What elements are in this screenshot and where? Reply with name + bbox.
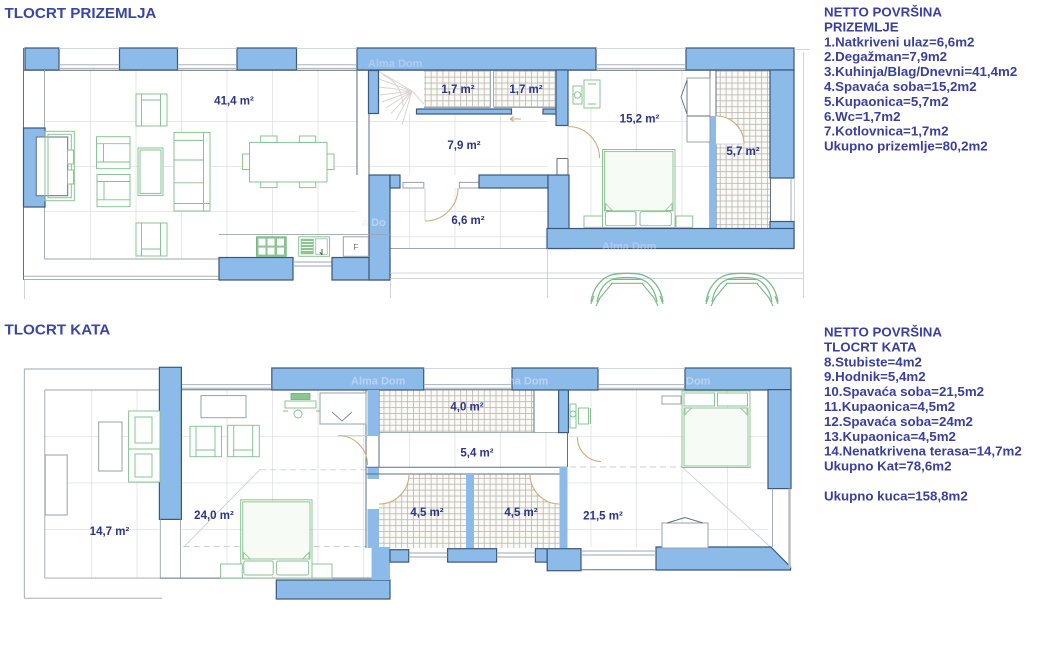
svg-text:10.Spavaća soba=21,5m2: 10.Spavaća soba=21,5m2 xyxy=(824,384,984,399)
svg-text:Alma Dom: Alma Dom xyxy=(602,241,657,253)
svg-text:1,7 m²: 1,7 m² xyxy=(441,84,474,96)
svg-text:F: F xyxy=(353,243,358,252)
svg-text:NETTO POVRŠINA: NETTO POVRŠINA xyxy=(824,5,942,20)
svg-text:12.Spavaća soba=24m2: 12.Spavaća soba=24m2 xyxy=(824,414,973,429)
svg-text:11.Kupaonica=4,5m2: 11.Kupaonica=4,5m2 xyxy=(824,399,955,414)
svg-text:a Do: a Do xyxy=(362,217,386,229)
svg-text:6.Wc=1,7m2: 6.Wc=1,7m2 xyxy=(824,109,901,124)
svg-text:7,9 m²: 7,9 m² xyxy=(447,140,480,152)
svg-text:7.Kotlovnica=1,7m2: 7.Kotlovnica=1,7m2 xyxy=(824,124,949,139)
svg-text:1,7 m²: 1,7 m² xyxy=(509,84,542,96)
svg-text:Ukupno Kat=78,6m2: Ukupno Kat=78,6m2 xyxy=(824,459,951,474)
svg-text:4,5 m²: 4,5 m² xyxy=(410,507,443,519)
svg-text:5,7 m²: 5,7 m² xyxy=(726,146,759,158)
svg-text:4.Spavaća soba=15,2m2: 4.Spavaća soba=15,2m2 xyxy=(824,79,977,94)
svg-text:Ukupno kuca=158,8m2: Ukupno kuca=158,8m2 xyxy=(824,488,968,503)
svg-text:TLOCRT KATA: TLOCRT KATA xyxy=(824,339,917,354)
svg-text:13.Kupaonica=4,5m2: 13.Kupaonica=4,5m2 xyxy=(824,429,956,444)
svg-text:1.Natkriveni ulaz=6,6m2: 1.Natkriveni ulaz=6,6m2 xyxy=(824,34,974,49)
svg-text:5,4 m²: 5,4 m² xyxy=(460,448,493,460)
svg-text:14,7 m²: 14,7 m² xyxy=(90,526,130,538)
svg-text:NETTO POVRŠINA: NETTO POVRŠINA xyxy=(824,325,942,340)
svg-text:PRIZEMLJE: PRIZEMLJE xyxy=(824,19,899,34)
svg-text:na Dom: na Dom xyxy=(508,376,549,388)
svg-text:2.Degažman=7,9m2: 2.Degažman=7,9m2 xyxy=(824,49,947,64)
svg-text:9.Hodnik=5,4m2: 9.Hodnik=5,4m2 xyxy=(824,369,926,384)
svg-text:5.Kupaonica=5,7m2: 5.Kupaonica=5,7m2 xyxy=(824,94,949,109)
svg-text:24,0 m²: 24,0 m² xyxy=(194,510,234,522)
svg-text:14.Nenatkrivena terasa=14,7m2: 14.Nenatkrivena terasa=14,7m2 xyxy=(824,444,1022,459)
svg-text:8.Stubiste=4m2: 8.Stubiste=4m2 xyxy=(824,354,922,369)
svg-text:TLOCRT PRIZEMLJA: TLOCRT PRIZEMLJA xyxy=(5,5,157,22)
svg-text:6,6 m²: 6,6 m² xyxy=(451,215,484,227)
svg-text:41,4 m²: 41,4 m² xyxy=(214,96,254,108)
svg-text:4,5 m²: 4,5 m² xyxy=(504,507,537,519)
svg-text:21,5 m²: 21,5 m² xyxy=(583,511,623,523)
svg-text:Ukupno prizemlje=80,2m2: Ukupno prizemlje=80,2m2 xyxy=(824,139,988,154)
svg-text:15,2 m²: 15,2 m² xyxy=(620,114,660,126)
svg-text:3.Kuhinja/Blag/Dnevni=41,4m2: 3.Kuhinja/Blag/Dnevni=41,4m2 xyxy=(824,64,1017,79)
svg-text:Alma Dom: Alma Dom xyxy=(351,376,406,388)
svg-text:4,0 m²: 4,0 m² xyxy=(450,402,483,414)
svg-text:TLOCRT KATA: TLOCRT KATA xyxy=(5,322,111,339)
svg-text:Alma Dom: Alma Dom xyxy=(368,58,423,70)
svg-text:Dom: Dom xyxy=(686,376,711,388)
